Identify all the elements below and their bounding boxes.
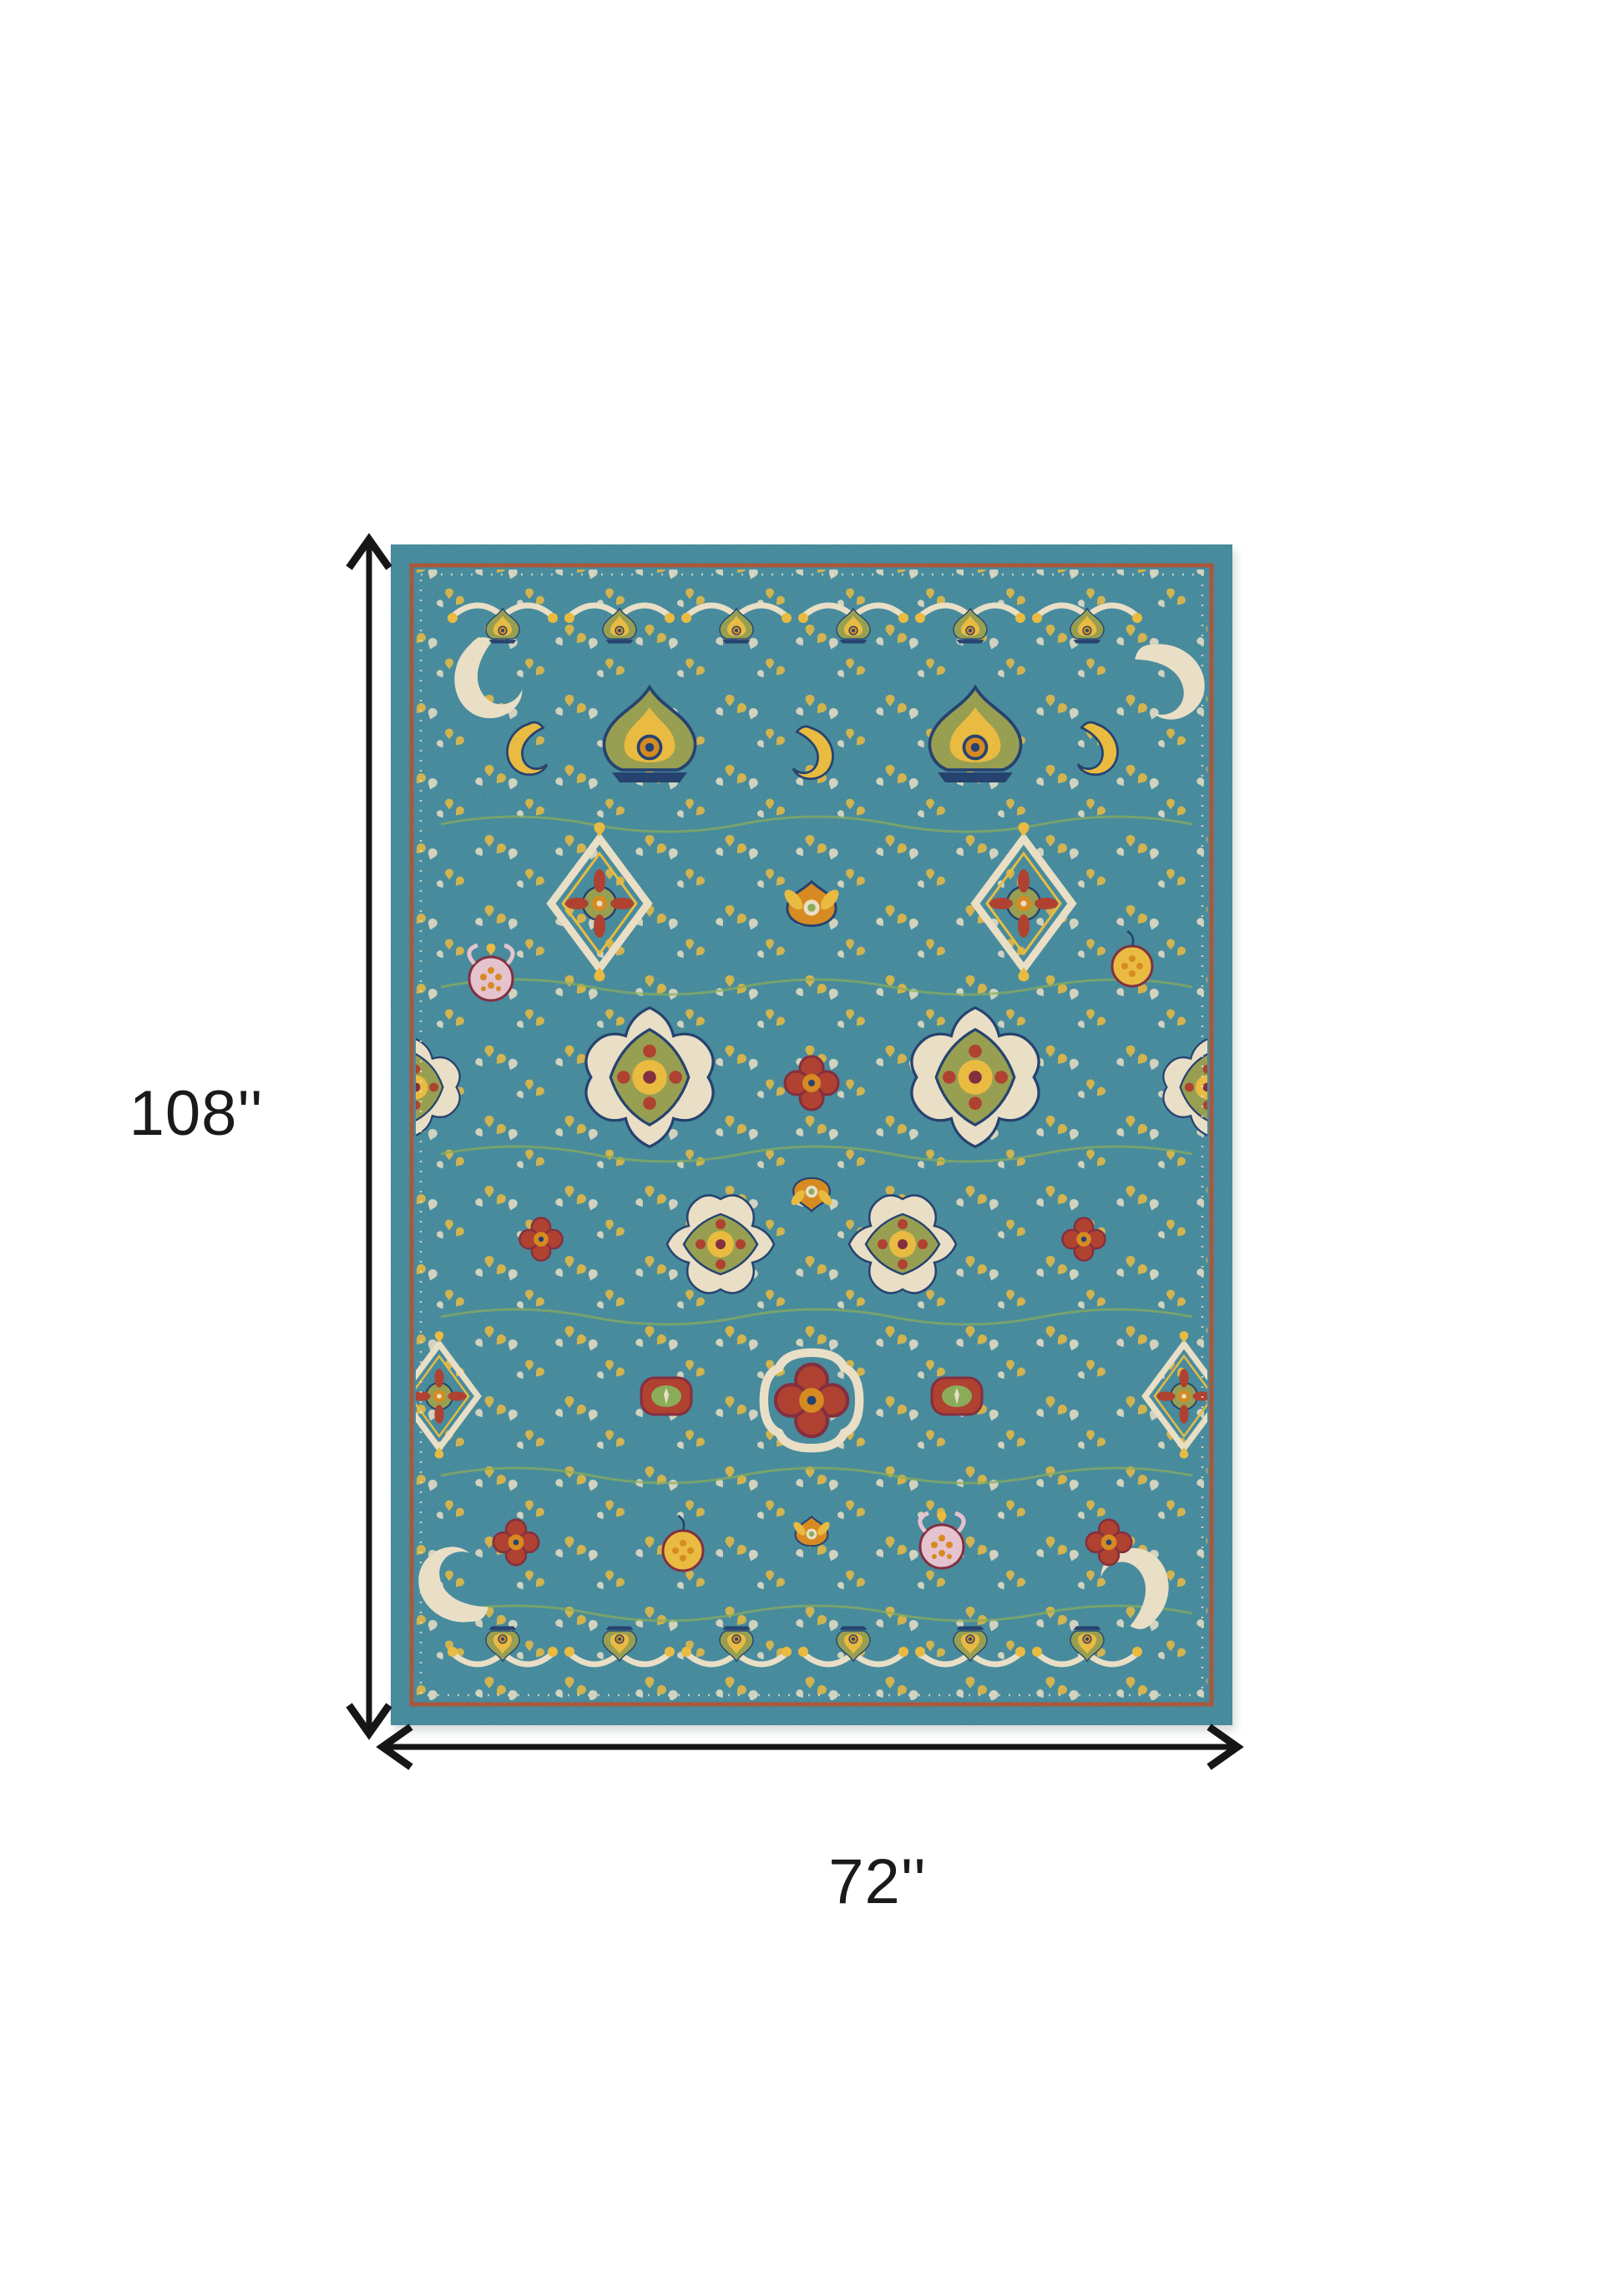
width-dimension-arrow <box>376 1718 1244 1776</box>
height-dimension-label: 108'' <box>71 1082 321 1146</box>
product-dimension-diagram: 108'' 72'' <box>0 0 1624 2273</box>
height-dimension-arrow <box>340 533 398 1740</box>
width-dimension-label: 72'' <box>752 1850 1003 1914</box>
rug-drawing <box>391 544 1232 1725</box>
rug-texture-shadow <box>391 544 1232 1725</box>
rug-image <box>391 544 1232 1725</box>
